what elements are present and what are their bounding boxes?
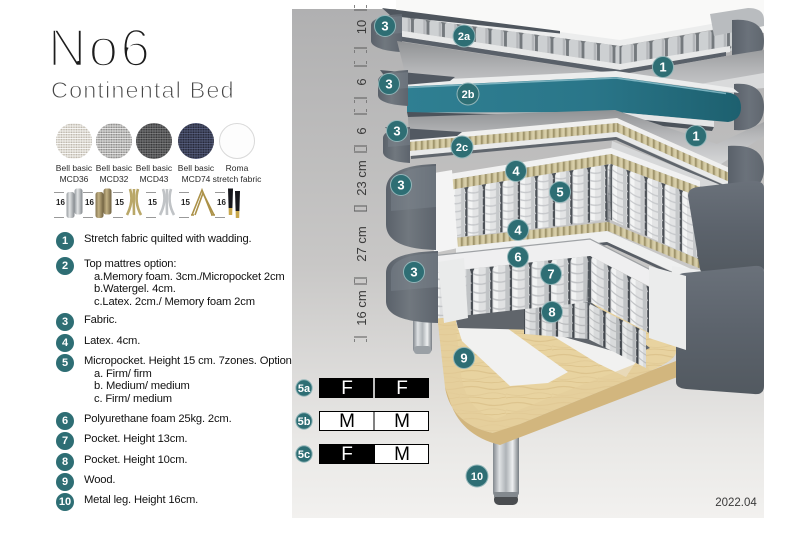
svg-text:23 cm: 23 cm	[354, 160, 369, 195]
svg-text:M: M	[394, 411, 410, 432]
svg-text:5b: 5b	[298, 416, 311, 428]
svg-text:F: F	[341, 378, 353, 399]
svg-text:2b: 2b	[462, 89, 475, 101]
svg-text:6: 6	[354, 127, 369, 134]
svg-text:16 cm: 16 cm	[354, 290, 369, 325]
svg-text:Continental Bed: Continental Bed	[51, 77, 235, 103]
svg-text:5c: 5c	[298, 449, 310, 461]
svg-text:1: 1	[659, 60, 666, 75]
svg-text:No6: No6	[48, 19, 152, 78]
svg-text:F: F	[396, 378, 408, 399]
svg-text:8: 8	[548, 305, 555, 320]
svg-text:3: 3	[393, 124, 400, 139]
svg-text:M: M	[339, 411, 355, 432]
svg-text:M: M	[394, 444, 410, 465]
svg-text:F: F	[341, 444, 353, 465]
svg-text:6: 6	[514, 250, 521, 265]
svg-text:4: 4	[512, 164, 520, 179]
svg-text:4: 4	[514, 223, 522, 238]
svg-text:2c: 2c	[456, 142, 468, 154]
svg-text:3: 3	[397, 178, 404, 193]
svg-text:2a: 2a	[458, 31, 471, 43]
svg-text:2022.04: 2022.04	[715, 497, 757, 509]
svg-text:10: 10	[354, 20, 369, 34]
svg-text:3: 3	[385, 77, 392, 92]
svg-text:3: 3	[410, 265, 417, 280]
svg-text:1: 1	[692, 129, 699, 144]
svg-text:5: 5	[556, 185, 563, 200]
svg-text:5a: 5a	[298, 383, 311, 395]
svg-text:27 cm: 27 cm	[354, 226, 369, 261]
svg-text:9: 9	[460, 351, 467, 366]
svg-text:7: 7	[547, 267, 554, 282]
svg-text:10: 10	[471, 471, 483, 483]
svg-text:6: 6	[354, 78, 369, 85]
svg-text:3: 3	[381, 19, 388, 34]
